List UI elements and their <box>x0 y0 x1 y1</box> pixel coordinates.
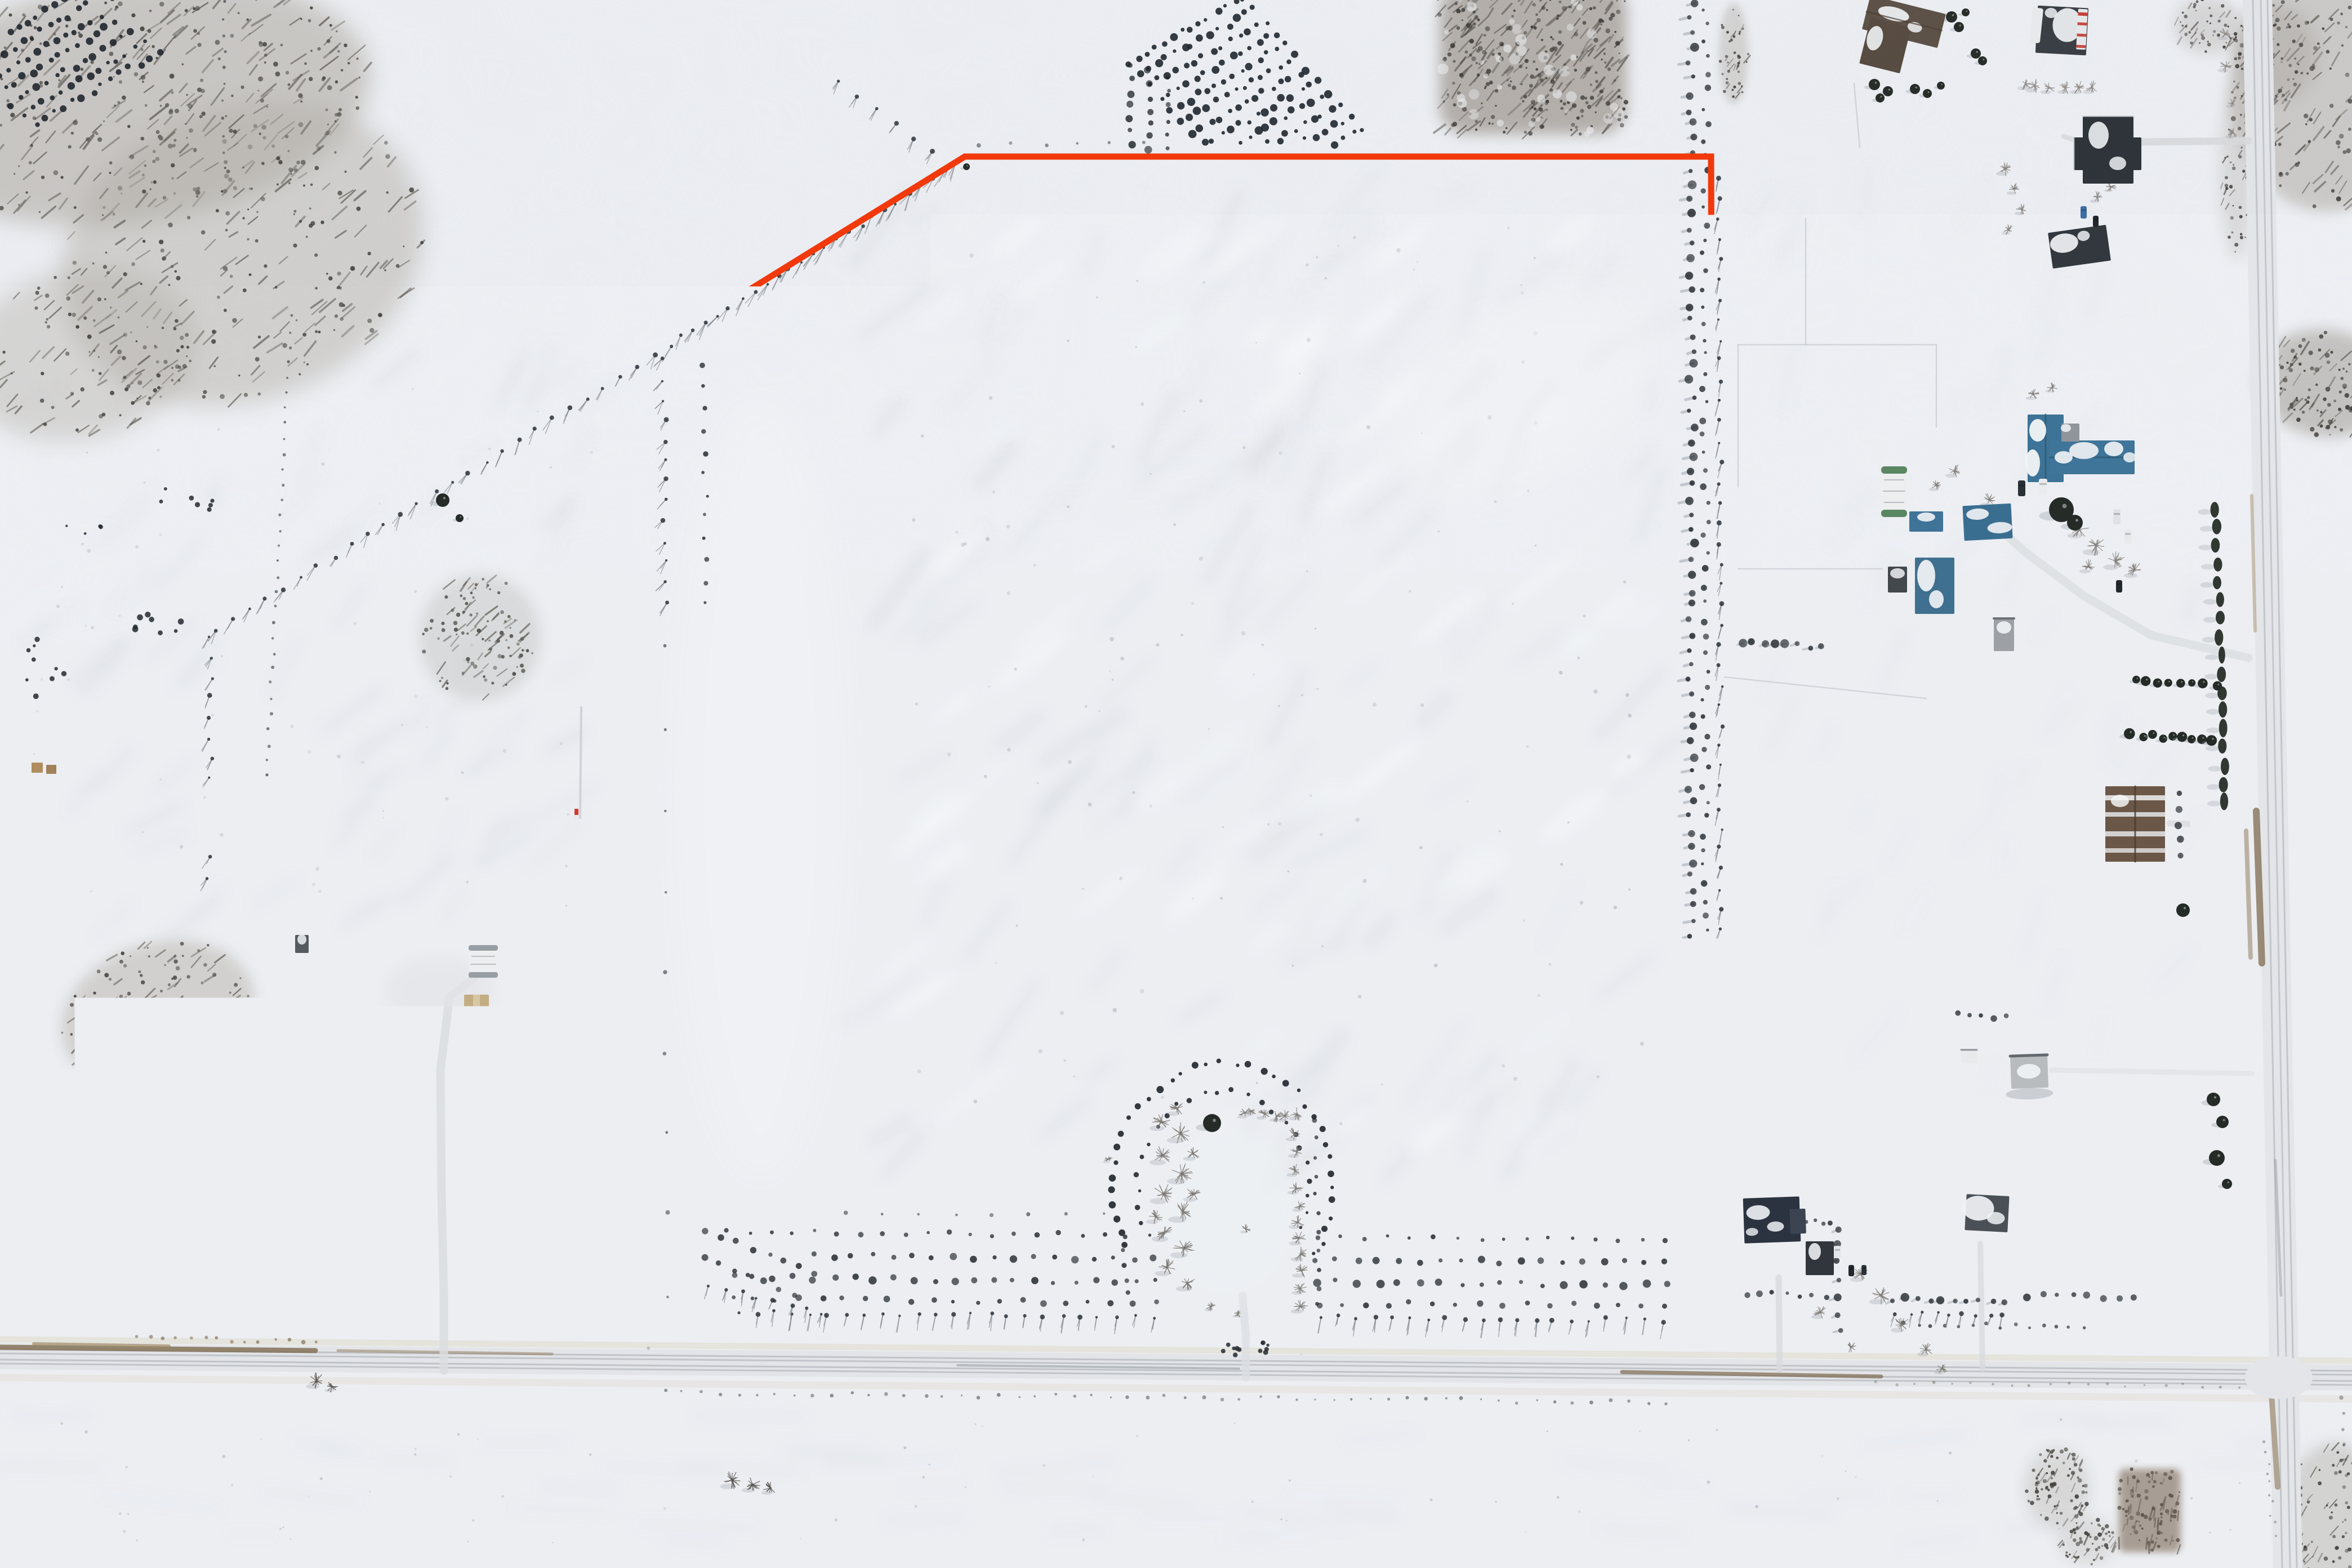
aerial-photo-canvas <box>0 0 2352 1568</box>
photo-grain <box>0 0 2352 1568</box>
aerial-photo <box>0 0 2352 1568</box>
